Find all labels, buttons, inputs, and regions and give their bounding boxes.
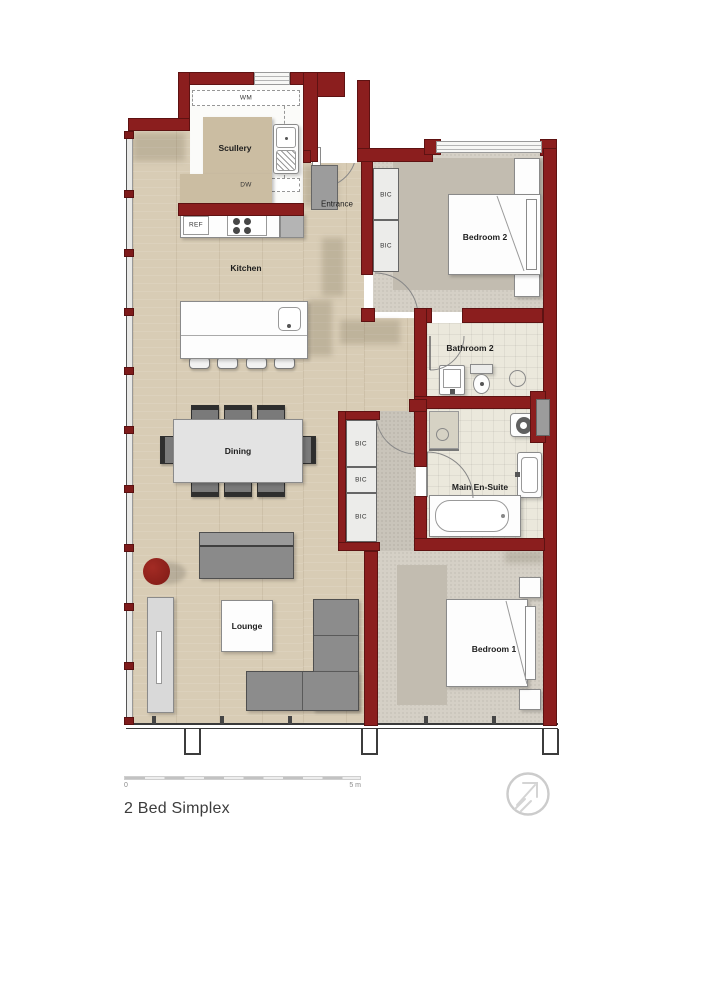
window-mullion	[124, 131, 134, 139]
wall	[128, 118, 190, 131]
basin-bowl	[521, 457, 538, 493]
sofa-seam	[314, 671, 358, 672]
wall	[409, 399, 427, 412]
wm-label: WM	[240, 95, 252, 102]
window	[254, 72, 290, 85]
wall	[178, 72, 190, 121]
shadow	[308, 300, 332, 356]
window-mullion	[124, 485, 134, 493]
bedroom1-side-table	[519, 577, 541, 598]
bathroom2-label: Bathroom 2	[446, 343, 493, 353]
sink-drainer	[276, 150, 296, 171]
bathtub	[429, 495, 521, 537]
dining-chair	[302, 436, 316, 464]
scullery-label: Scullery	[218, 143, 251, 153]
wall	[357, 80, 370, 150]
bedroom1-rug	[397, 565, 447, 705]
window-mullion-tick	[424, 716, 428, 724]
wall	[338, 411, 346, 551]
bathtub-drain	[501, 514, 505, 518]
ref-label: REF	[189, 222, 203, 229]
shadow	[505, 551, 543, 563]
window-mullion-tick	[220, 716, 224, 724]
basin-tap	[450, 389, 455, 394]
dining-chair	[191, 481, 219, 497]
wall	[462, 308, 543, 323]
window-mullion	[124, 367, 134, 375]
plant-pot	[143, 558, 170, 585]
service-duct	[536, 399, 550, 436]
tv-screen	[156, 631, 162, 684]
window-mullion	[124, 544, 134, 552]
wall	[361, 308, 375, 322]
window-mullion	[124, 308, 134, 316]
scale-start-label: 0	[124, 782, 128, 789]
shower-drain	[436, 428, 449, 441]
tv-cabinet	[147, 597, 174, 713]
sink-tap	[285, 137, 288, 140]
kitchen-island	[180, 301, 308, 359]
basin-tap	[515, 472, 520, 477]
kitchen-counter-end	[280, 213, 304, 238]
ensuite-label: Main En-Suite	[452, 482, 508, 492]
window	[436, 141, 542, 153]
bedroom1-bed	[446, 599, 528, 687]
bathroom2-toilet	[470, 364, 493, 374]
stove-burner	[233, 227, 240, 234]
bic-label: BIC	[355, 477, 367, 484]
dining-chair	[160, 436, 174, 464]
bic-label: BIC	[380, 243, 392, 250]
sofa-seam	[314, 635, 358, 636]
scullery-counter	[180, 174, 272, 203]
wall	[338, 542, 380, 551]
basin-bowl	[443, 369, 461, 388]
lounge-label: Lounge	[232, 621, 263, 631]
sofa	[199, 532, 294, 579]
window-mullion	[124, 249, 134, 257]
bedroom1-side-table	[519, 689, 541, 710]
window-mullion	[124, 426, 134, 434]
wall	[361, 161, 373, 275]
window-mullion	[124, 190, 134, 198]
facade-column	[361, 729, 378, 755]
floor-drain	[509, 370, 526, 387]
hallway-floor	[376, 411, 416, 551]
ensuite-basin	[517, 452, 542, 498]
island-tap	[287, 324, 291, 328]
floorplan: WM Scullery DW REF Kitchen Entrance BIC …	[0, 0, 706, 1000]
bathroom2-toilet-bowl	[473, 374, 490, 394]
bedroom1-pillow	[525, 606, 536, 680]
wall	[414, 409, 427, 467]
window-mullion	[124, 662, 134, 670]
window-mullion	[124, 717, 134, 725]
scullery-sink	[273, 124, 299, 174]
bic-label: BIC	[380, 192, 392, 199]
window-mullion	[124, 603, 134, 611]
window-mullion-tick	[288, 716, 292, 724]
bedroom2-label: Bedroom 2	[463, 232, 507, 242]
stove-burner	[244, 218, 251, 225]
wall	[414, 396, 534, 409]
scale-end-label: 5 m	[349, 782, 361, 789]
entrance-label: Entrance	[321, 200, 353, 209]
wall	[303, 72, 318, 162]
wall	[364, 551, 378, 726]
sofa-seam	[302, 672, 303, 710]
bathtub-basin	[435, 500, 509, 532]
stove-burner	[244, 227, 251, 234]
facade-column	[542, 729, 559, 755]
bedroom1-label: Bedroom 1	[472, 644, 516, 654]
north-arrow-logo	[503, 769, 553, 819]
shower	[429, 411, 459, 449]
shadow	[322, 238, 344, 296]
bedroom2-side-table	[514, 158, 540, 195]
floorplan-page: { "title": "2 Bed Simplex", "scale_bar":…	[0, 0, 706, 1000]
dining-chair	[224, 481, 252, 497]
wall	[414, 538, 545, 551]
wall	[303, 150, 311, 163]
bedroom2-side-table	[514, 272, 540, 297]
scale-bar	[124, 776, 361, 780]
bic-label: BIC	[355, 514, 367, 521]
wall	[357, 148, 433, 162]
dw-label: DW	[240, 182, 251, 189]
shower-glass	[429, 449, 459, 451]
shadow	[340, 320, 400, 344]
toilet-dot	[520, 422, 527, 429]
window-mullion-tick	[492, 716, 496, 724]
kitchen-label: Kitchen	[230, 263, 261, 273]
scale-bar-labels: 0 5 m	[124, 782, 361, 789]
facade-column	[184, 729, 201, 755]
window-mullion-tick	[152, 716, 156, 724]
bedroom2-pillow	[526, 199, 537, 270]
bic-label: BIC	[355, 441, 367, 448]
wall	[414, 308, 427, 409]
island-divider	[181, 335, 307, 336]
stove-burner	[233, 218, 240, 225]
toilet-drain	[480, 382, 484, 386]
shadow	[133, 133, 185, 161]
wall	[178, 203, 304, 216]
dining-label: Dining	[225, 446, 251, 456]
page-title: 2 Bed Simplex	[124, 800, 230, 818]
logo-arrow-shaft	[517, 785, 535, 805]
bathroom2-basin	[439, 365, 465, 395]
dining-chair	[257, 481, 285, 497]
